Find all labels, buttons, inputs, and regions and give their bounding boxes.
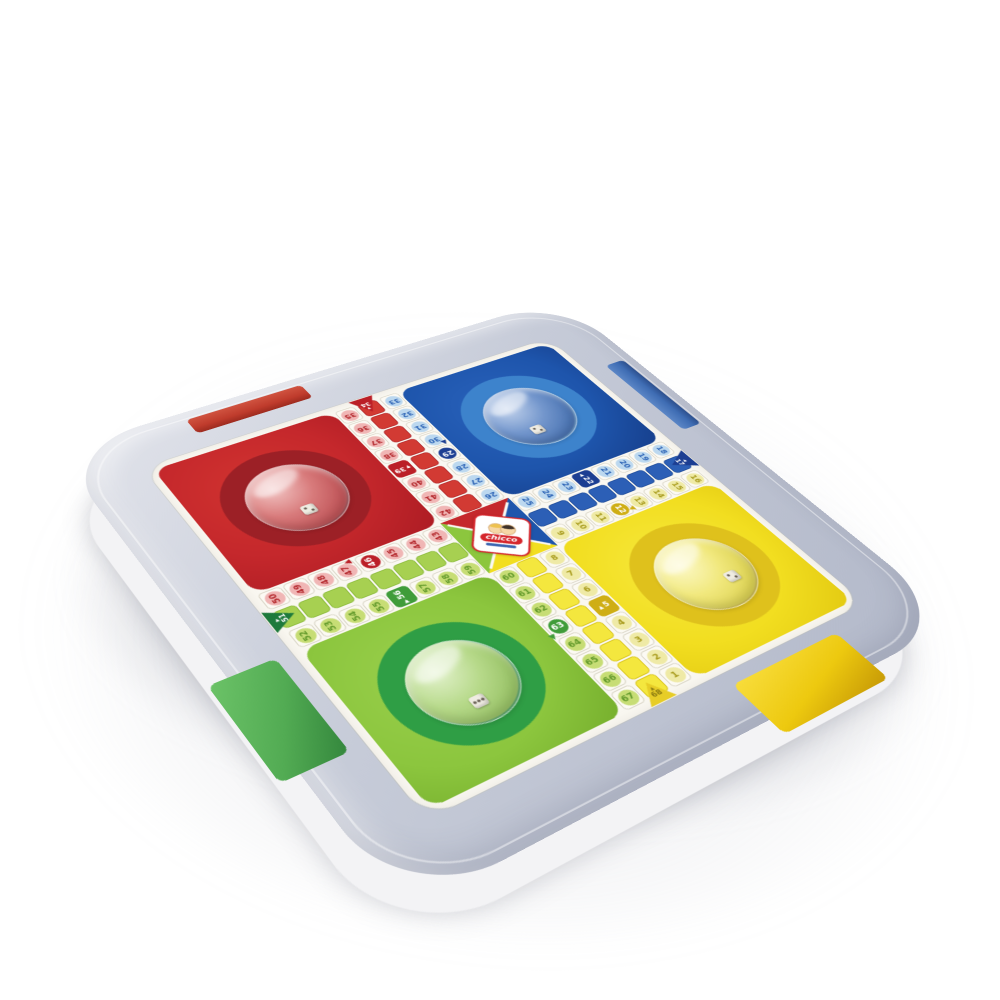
green-dome-ring [345, 602, 579, 771]
track-cell: 64 [557, 631, 593, 656]
home-ladder-cell-yellow [633, 673, 670, 700]
red-dice-dome [193, 435, 400, 565]
track-cell: 49 [281, 577, 316, 601]
cell-number-33: 33 [381, 394, 405, 408]
track-cell: 46 [353, 550, 388, 573]
cell-number-47: 47 [333, 561, 361, 579]
green-quadrant [301, 573, 626, 808]
green-dice-dome [345, 602, 579, 771]
logo-child-face [500, 523, 516, 535]
track-cell: 57 [407, 576, 442, 600]
cell-number-1: 1 [660, 664, 689, 685]
home-entry-label: ▲68 [646, 685, 665, 699]
cell-number-59: 59 [456, 560, 483, 578]
track-cell: 6 [570, 578, 605, 601]
track-cell: 58 [430, 567, 465, 590]
track-cell: 4 [603, 610, 639, 634]
home-ladder-cell-yellow [615, 655, 652, 681]
cell-number-28: 28 [448, 459, 473, 474]
home-ladder-cell-green [391, 558, 426, 581]
cell-number-35: 35 [337, 408, 361, 422]
cell-number-40: 40 [403, 475, 429, 491]
die [299, 503, 319, 516]
track-cell: 54 [336, 603, 372, 628]
cell-number-49: 49 [285, 579, 313, 598]
track-cell: 62 [523, 597, 558, 621]
track-cell: 44 [398, 533, 432, 555]
cell-number-27: 27 [462, 473, 488, 489]
cell-number-53: 53 [316, 616, 345, 636]
cell-number-64: 64 [560, 633, 589, 653]
cell-number-62: 62 [527, 600, 555, 619]
track-cell: 45 [376, 542, 410, 564]
start-cell-label: ▶56 [384, 585, 419, 609]
die [467, 693, 490, 710]
cell-number-8: 8 [541, 549, 568, 567]
cell-number-37: 37 [363, 434, 388, 449]
cell-number-45: 45 [379, 544, 406, 562]
track-arm-left: 5049484746454443▲▶5152535455▶56575859 [255, 523, 489, 650]
product-photo: chicco 35363738▼39404142▼343332313029282… [0, 0, 1000, 1000]
cell-number-61: 61 [511, 584, 539, 603]
chicco-logo: chicco [471, 513, 531, 557]
cell-number-55: 55 [364, 596, 392, 615]
start-cell-5: ▲5 [586, 594, 621, 618]
start-cell-56: ▶56 [384, 585, 419, 609]
cell-number-67: 67 [613, 687, 643, 708]
track-cell: 52 [287, 623, 324, 649]
safe-cell-63: 63 [543, 616, 571, 636]
track-cell: 63 [540, 614, 576, 639]
track-cell: 50 [257, 586, 293, 610]
cell-number-58: 58 [434, 569, 462, 587]
track-cell: 53 [312, 613, 348, 638]
green-dome-glass [383, 625, 545, 742]
track-cell: 59 [452, 558, 487, 581]
cell-number-3: 3 [624, 630, 652, 650]
cell-number-31: 31 [407, 419, 432, 433]
track-cell: 3 [621, 627, 657, 652]
safe-cell-46: 46 [356, 553, 383, 571]
home-ladder-cell-green [321, 585, 357, 609]
cell-number-36: 36 [350, 421, 375, 436]
cell-number-66: 66 [595, 669, 624, 690]
track-cell: 66 [591, 666, 628, 692]
track-cell: 7 [554, 562, 588, 585]
cell-number-6: 6 [573, 580, 601, 598]
red-dome-ring [193, 435, 400, 565]
logo-children-icon [488, 522, 517, 535]
cell-number-38: 38 [376, 448, 401, 463]
home-ladder-cell-green [296, 595, 332, 620]
home-ladder-cell-yellow [580, 621, 616, 646]
cell-number-50: 50 [260, 589, 288, 608]
logo-subtitle-bar [486, 542, 516, 548]
track-cell: 48 [306, 568, 341, 592]
cell-number-41: 41 [417, 489, 443, 505]
safe-cell-29: 29 [434, 446, 459, 461]
home-ladder-cell-green [436, 541, 470, 563]
home-ladder-cell-yellow [547, 588, 582, 612]
track-cell: 60 [491, 565, 526, 588]
cell-number-44: 44 [402, 535, 429, 553]
cell-number-43: 43 [424, 527, 451, 544]
home-ladder-cell-green [272, 604, 308, 629]
direction-arrow: ▲ [341, 556, 355, 566]
home-entry-label: ▶51 [273, 612, 292, 624]
cell-number-26: 26 [477, 487, 503, 503]
home-ladder-cell-yellow [597, 638, 633, 663]
cell-number-42: 42 [431, 503, 457, 520]
cell-number-7: 7 [557, 564, 584, 582]
cell-number-65: 65 [578, 651, 607, 671]
yellow-dice-dome [599, 506, 812, 647]
track-cell: 67 [609, 684, 646, 711]
track-cell: 2 [638, 644, 674, 670]
yellow-dome-ring [599, 506, 812, 647]
cell-number-32: 32 [394, 407, 418, 421]
home-ladder-cell-yellow [563, 604, 598, 628]
home-ladder-cell-green [345, 576, 380, 600]
track-cell: 8 [538, 547, 572, 569]
direction-arrow: ▼ [548, 632, 563, 642]
home-entry-68: ▲68 [633, 676, 677, 707]
cell-number-2: 2 [642, 647, 671, 667]
home-ladder-cell-green [414, 550, 448, 573]
track-arm-bottom: 6061626364656667▼▲68876▲54321 [489, 545, 696, 712]
cell-number-60: 60 [495, 568, 522, 586]
die [528, 424, 547, 435]
cell-number-52: 52 [291, 625, 320, 645]
home-entry-51: ▶51 [261, 603, 302, 633]
track-cell: 55 [361, 594, 397, 618]
die [722, 569, 743, 582]
home-ladder-cell-green [368, 567, 403, 590]
cell-number-54: 54 [340, 606, 369, 626]
track-cell: 43 [420, 525, 454, 547]
cell-number-48: 48 [309, 570, 337, 589]
cell-number-4: 4 [607, 613, 635, 632]
track-cell: 47 [329, 559, 364, 582]
home-ladder-cell-yellow [515, 556, 549, 579]
track-cell: 65 [574, 648, 611, 674]
track-cell: 1 [657, 662, 694, 688]
start-cell-label: ▲5 [586, 594, 621, 618]
logo-wordmark: chicco [480, 532, 522, 544]
home-ladder-cell-yellow [531, 572, 566, 595]
track-cell: 61 [507, 581, 542, 605]
cell-number-57: 57 [411, 578, 439, 597]
